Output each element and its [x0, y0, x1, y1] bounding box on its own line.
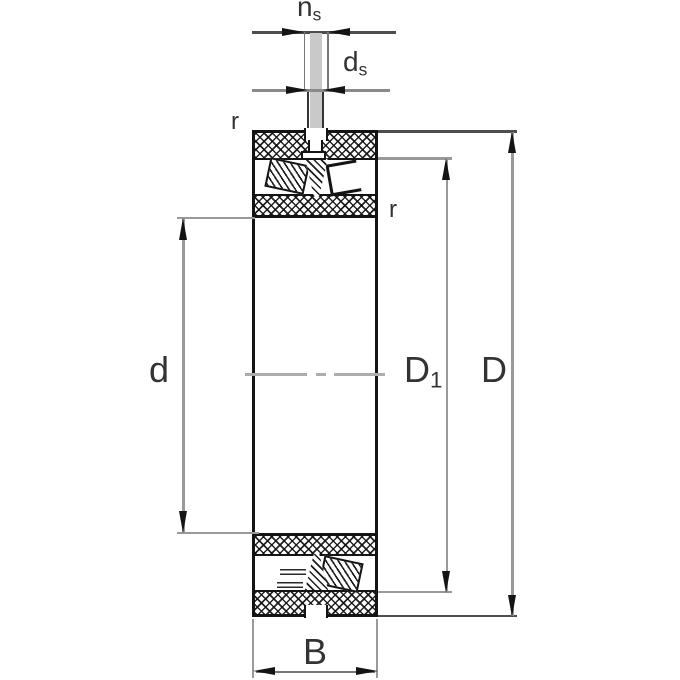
cage-bottom-left [277, 581, 303, 588]
lubrication-groove-bottom [304, 605, 328, 618]
hole-wall-right [322, 90, 324, 130]
ds-arrow-left-icon [286, 86, 308, 94]
D-extension-top [378, 130, 517, 133]
D1-dimension-line [446, 159, 449, 592]
ds-arrow-right-icon [323, 86, 345, 94]
D-dimension-line [511, 132, 514, 616]
ns-extension-right [327, 32, 329, 90]
ds-dimension-line [252, 89, 390, 92]
label-D: D [481, 352, 507, 388]
guide-rib-top [305, 158, 328, 196]
d-arrow-up-icon [179, 218, 187, 240]
label-D1: D1 [404, 352, 442, 392]
d-extension-bottom [177, 532, 259, 534]
D1-arrow-up-icon [442, 158, 450, 180]
label-d: d [149, 352, 169, 388]
D-arrow-up-icon [508, 131, 516, 153]
label-B: B [303, 634, 327, 670]
label-ns: ns [297, 0, 321, 24]
D-arrow-down-icon [508, 595, 516, 617]
ns-dimension-line [252, 31, 396, 34]
inner-groove-top [301, 151, 326, 160]
ns-arrow-left-icon [282, 28, 304, 36]
d-dimension-line [182, 219, 185, 532]
ns-extension-left [304, 32, 306, 90]
D1-extension-top [378, 157, 452, 160]
B-arrow-right-icon [356, 667, 378, 675]
B-arrow-left-icon [253, 667, 275, 675]
label-r-outer: r [231, 110, 239, 134]
lubrication-hole-projection [310, 33, 322, 130]
cage-bottom-left [280, 566, 306, 575]
roller-sectioned-top-left [264, 157, 309, 195]
cage-top-right [325, 160, 361, 197]
centerline-segment [334, 373, 385, 376]
D-extension-bottom [378, 615, 517, 618]
inner-ring-bottom [255, 536, 375, 556]
bearing-dimension-drawing: ns ds r r d D1 D B [0, 0, 680, 680]
centerline-segment [245, 373, 307, 376]
inner-ring-top [255, 194, 375, 215]
d-extension-top [177, 217, 255, 219]
d-arrow-down-icon [179, 511, 187, 533]
D1-arrow-down-icon [442, 571, 450, 593]
ns-arrow-right-icon [328, 28, 350, 36]
label-r-inner: r [389, 198, 397, 222]
label-ds: ds [343, 48, 367, 79]
centerline-dot [316, 373, 326, 376]
D1-extension-bottom [378, 591, 452, 594]
hole-wall-left [307, 90, 309, 130]
